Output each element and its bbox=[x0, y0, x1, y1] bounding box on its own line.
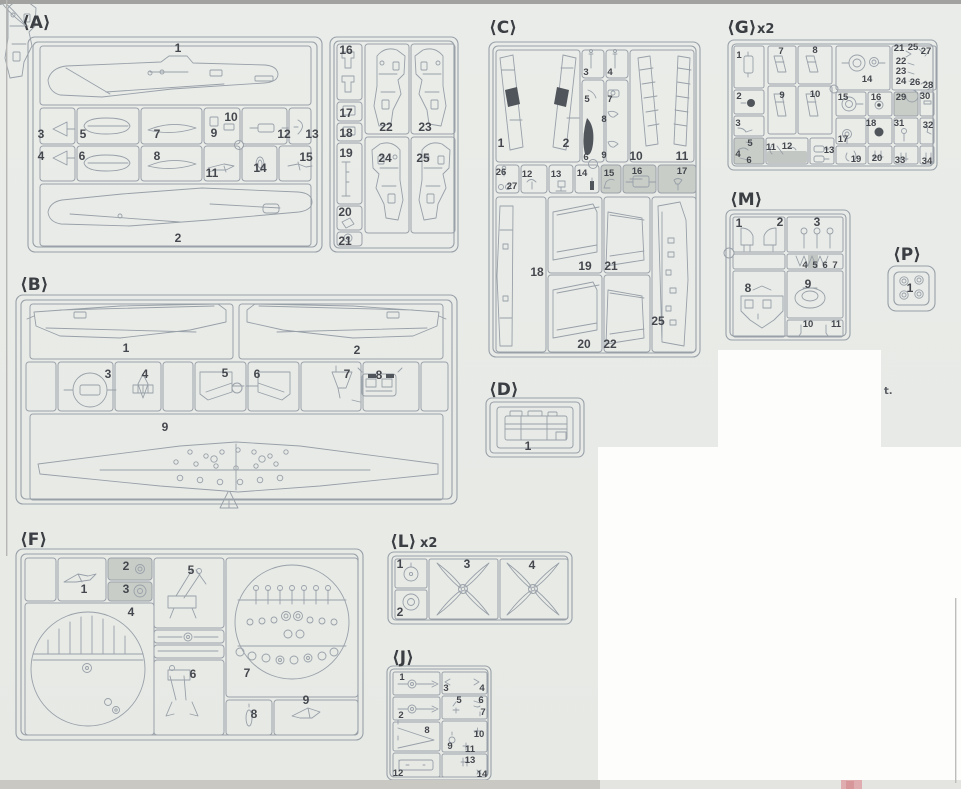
part-label: 20 bbox=[872, 153, 883, 164]
part-label: 25 bbox=[416, 151, 430, 165]
sprue-B: ⟨B⟩ 1 2 3 4 5 6 7 8 9 bbox=[16, 275, 457, 508]
parts-map-canvas: ⟨A⟩ 1 2 3 4 5 6 7 8 9 10 11 12 13 14 15 … bbox=[0, 0, 961, 789]
part-label: 11 bbox=[676, 149, 689, 163]
sprue-P: ⟨P⟩ 1 bbox=[888, 245, 935, 311]
sprue-L-title: ⟨L⟩ bbox=[390, 532, 416, 552]
part-label: 9 bbox=[447, 741, 452, 752]
part-label: 18 bbox=[866, 118, 877, 129]
scan-white-patches bbox=[598, 350, 961, 783]
part-label: 7 bbox=[778, 46, 783, 57]
sprue-C-labels: 1 2 3 4 5 6 7 8 9 10 11 12 13 14 15 16 1… bbox=[496, 67, 689, 351]
part-label: 2 bbox=[563, 136, 570, 150]
part-label: 14 bbox=[577, 168, 588, 179]
part-label: 9 bbox=[303, 693, 310, 707]
part-label: 8 bbox=[154, 149, 161, 163]
part-label: 1 bbox=[175, 41, 182, 55]
part-label: 6 bbox=[190, 667, 197, 681]
part-label: 5 bbox=[812, 260, 818, 271]
part-label: 16 bbox=[871, 92, 882, 103]
part-label: 8 bbox=[376, 368, 383, 382]
part-label: 20 bbox=[577, 337, 591, 351]
part-label: 21 bbox=[894, 43, 905, 54]
sprue-B-part-art bbox=[27, 304, 446, 508]
sprue-L-part-art bbox=[0, 0, 559, 615]
scan-pink-smudge-core bbox=[846, 781, 854, 789]
sprue-F-title: ⟨F⟩ bbox=[20, 530, 47, 550]
part-label: 10 bbox=[474, 729, 485, 740]
part-label: 18 bbox=[530, 265, 544, 279]
part-label: 1 bbox=[907, 281, 914, 295]
part-label: 9 bbox=[162, 420, 169, 434]
sprue-L-quantity: x2 bbox=[420, 536, 437, 551]
part-label: 11 bbox=[831, 319, 842, 330]
part-label: 31 bbox=[894, 118, 905, 129]
scan-right-line bbox=[955, 598, 956, 783]
part-label: 6 bbox=[478, 695, 483, 706]
part-label: 2 bbox=[397, 605, 404, 619]
part-label: 5 bbox=[584, 94, 590, 105]
part-label: 4 bbox=[529, 558, 536, 572]
part-label: 12 bbox=[393, 768, 404, 779]
sprue-B-title: ⟨B⟩ bbox=[20, 275, 49, 295]
sprue-P-title: ⟨P⟩ bbox=[893, 245, 921, 265]
part-label: 4 bbox=[142, 367, 149, 381]
part-label: 19 bbox=[578, 259, 592, 273]
part-label: 4 bbox=[128, 605, 135, 619]
sprue-D-part-art bbox=[505, 411, 567, 440]
part-label: 1 bbox=[81, 582, 88, 596]
part-label: 9 bbox=[211, 126, 218, 140]
part-label: 12 bbox=[782, 141, 793, 152]
part-label: 33 bbox=[895, 155, 906, 166]
part-label: 15 bbox=[604, 168, 615, 179]
part-label: 7 bbox=[480, 707, 485, 718]
sprue-J-title: ⟨J⟩ bbox=[392, 648, 414, 668]
part-label: 26 bbox=[910, 77, 921, 88]
part-label: 3 bbox=[443, 683, 448, 694]
part-label: 1 bbox=[736, 216, 743, 230]
part-label: 4 bbox=[802, 260, 808, 271]
sprue-G: ⟨G⟩ x2 1 2 3 4 5 6 7 8 9 10 11 12 13 14 … bbox=[727, 18, 937, 170]
part-label: 7 bbox=[154, 127, 161, 141]
part-label: 2 bbox=[354, 343, 361, 357]
part-label: 6 bbox=[746, 155, 751, 166]
part-label: 3 bbox=[583, 67, 588, 78]
part-label: 8 bbox=[251, 707, 258, 721]
part-label: 10 bbox=[803, 319, 814, 330]
part-label: 2 bbox=[175, 231, 182, 245]
sprue-M-cells bbox=[724, 217, 843, 337]
sprue-B-cells bbox=[26, 304, 448, 500]
part-label: 16 bbox=[632, 166, 643, 177]
part-label: 8 bbox=[601, 114, 606, 125]
part-label: 24 bbox=[896, 76, 907, 87]
part-label: 1 bbox=[399, 672, 405, 683]
part-label: 5 bbox=[80, 127, 87, 141]
scan-bottom-bar-faint bbox=[600, 780, 961, 789]
part-label: 4 bbox=[38, 149, 45, 163]
scan-left-line bbox=[6, 0, 7, 556]
part-label: 5 bbox=[188, 563, 195, 577]
part-label: 3 bbox=[735, 118, 740, 129]
stray-text-mark: t. bbox=[884, 386, 893, 397]
part-label: 11 bbox=[465, 744, 476, 755]
part-label: 7 bbox=[344, 367, 351, 381]
part-label: 8 bbox=[812, 45, 817, 56]
sprue-F: ⟨F⟩ 1 2 3 4 5 6 7 8 9 bbox=[16, 530, 363, 740]
part-label: 12 bbox=[522, 169, 533, 180]
part-label: 1 bbox=[498, 136, 505, 150]
part-label: 10 bbox=[810, 89, 821, 100]
part-label: 3 bbox=[123, 582, 130, 596]
sprue-A: ⟨A⟩ 1 2 3 4 5 6 7 8 9 10 11 12 13 14 15 … bbox=[5, 1, 458, 252]
part-label: 2 bbox=[398, 710, 403, 721]
sprue-L-cells bbox=[395, 559, 568, 619]
sprue-J: ⟨J⟩ 1 2 3 4 5 6 7 8 9 10 11 12 13 14 bbox=[387, 648, 491, 780]
sprue-M: ⟨M⟩ 1 2 3 4 5 6 7 8 9 10 11 bbox=[724, 190, 850, 340]
part-label: 6 bbox=[79, 149, 86, 163]
part-label: 11 bbox=[206, 166, 219, 180]
part-label: 3 bbox=[38, 127, 45, 141]
sprue-C-title: ⟨C⟩ bbox=[489, 18, 517, 38]
part-label: 7 bbox=[244, 666, 251, 680]
part-label: 22 bbox=[603, 337, 617, 351]
part-label: 7 bbox=[832, 260, 837, 271]
part-label: 20 bbox=[338, 205, 352, 219]
part-label: 2 bbox=[736, 91, 741, 102]
part-label: 10 bbox=[629, 149, 643, 163]
sprue-M-labels: 1 2 3 4 5 6 7 8 9 10 11 bbox=[736, 215, 842, 330]
part-label: 12 bbox=[277, 127, 291, 141]
scan-bottom-bar bbox=[0, 780, 600, 789]
part-label: 13 bbox=[551, 169, 562, 180]
part-label: 17 bbox=[838, 134, 849, 145]
sprue-C-part-art bbox=[497, 50, 691, 347]
part-label: 1 bbox=[736, 50, 742, 61]
part-label: 28 bbox=[923, 80, 934, 91]
part-label: 14 bbox=[477, 769, 488, 780]
part-label: 24 bbox=[378, 151, 392, 165]
part-label: 6 bbox=[254, 367, 261, 381]
sprue-D: ⟨D⟩ 1 bbox=[486, 380, 584, 457]
part-label: 2 bbox=[777, 215, 784, 229]
sprue-C: ⟨C⟩ 1 2 3 4 5 6 7 8 9 10 11 12 13 14 15 … bbox=[489, 18, 700, 357]
sprue-G-title: ⟨G⟩ bbox=[727, 18, 757, 38]
part-label: 5 bbox=[222, 366, 229, 380]
part-label: 13 bbox=[465, 755, 476, 766]
part-label: 25 bbox=[908, 42, 919, 53]
part-label: 5 bbox=[747, 138, 753, 149]
scan-top-bar bbox=[0, 0, 961, 4]
part-label: 1 bbox=[123, 341, 130, 355]
part-label: 21 bbox=[338, 234, 352, 248]
part-label: 11 bbox=[766, 142, 777, 153]
part-label: 16 bbox=[339, 43, 353, 57]
part-label: 25 bbox=[651, 314, 665, 328]
part-label: 2 bbox=[123, 559, 130, 573]
part-label: 30 bbox=[920, 91, 931, 102]
part-label: 19 bbox=[851, 154, 862, 165]
part-label: 13 bbox=[824, 145, 835, 156]
part-label: 9 bbox=[805, 277, 812, 291]
part-label: 1 bbox=[525, 439, 532, 453]
part-label: 5 bbox=[456, 695, 462, 706]
part-label: 9 bbox=[601, 150, 606, 161]
part-label: 27 bbox=[921, 46, 932, 57]
part-label: 10 bbox=[224, 110, 238, 124]
part-label: 7 bbox=[607, 94, 612, 105]
part-label: 23 bbox=[418, 120, 432, 134]
part-label: 13 bbox=[305, 127, 319, 141]
part-label: 21 bbox=[604, 259, 618, 273]
part-label: 18 bbox=[339, 126, 353, 140]
part-label: 3 bbox=[814, 215, 821, 229]
part-label: 32 bbox=[923, 120, 934, 131]
part-label: 15 bbox=[838, 92, 849, 103]
sprue-A-title: ⟨A⟩ bbox=[22, 13, 51, 33]
part-label: 17 bbox=[339, 106, 353, 120]
part-label: 4 bbox=[735, 149, 741, 160]
sprue-M-title: ⟨M⟩ bbox=[730, 190, 762, 210]
part-label: 14 bbox=[253, 161, 267, 175]
part-label: 22 bbox=[379, 120, 393, 134]
part-label: 4 bbox=[479, 683, 485, 694]
part-label: 8 bbox=[424, 725, 429, 736]
sprue-D-title: ⟨D⟩ bbox=[489, 380, 519, 400]
part-label: 34 bbox=[922, 156, 933, 167]
part-label: 26 bbox=[496, 167, 507, 178]
part-label: 29 bbox=[896, 92, 907, 103]
part-label: 6 bbox=[583, 152, 588, 163]
part-label: 9 bbox=[779, 90, 784, 101]
part-label: 3 bbox=[464, 557, 471, 571]
part-label: 3 bbox=[105, 367, 112, 381]
part-label: 8 bbox=[745, 281, 752, 295]
part-label: 14 bbox=[862, 74, 873, 85]
part-label: 27 bbox=[507, 181, 518, 192]
part-label: 19 bbox=[339, 146, 353, 160]
sprue-G-quantity: x2 bbox=[757, 22, 774, 37]
part-label: 1 bbox=[397, 557, 404, 571]
part-label: 17 bbox=[677, 166, 688, 177]
parts-map-page: ⟨A⟩ 1 2 3 4 5 6 7 8 9 10 11 12 13 14 15 … bbox=[0, 0, 961, 789]
part-label: 6 bbox=[822, 260, 827, 271]
part-label: 15 bbox=[299, 150, 313, 164]
part-label: 4 bbox=[607, 67, 613, 78]
